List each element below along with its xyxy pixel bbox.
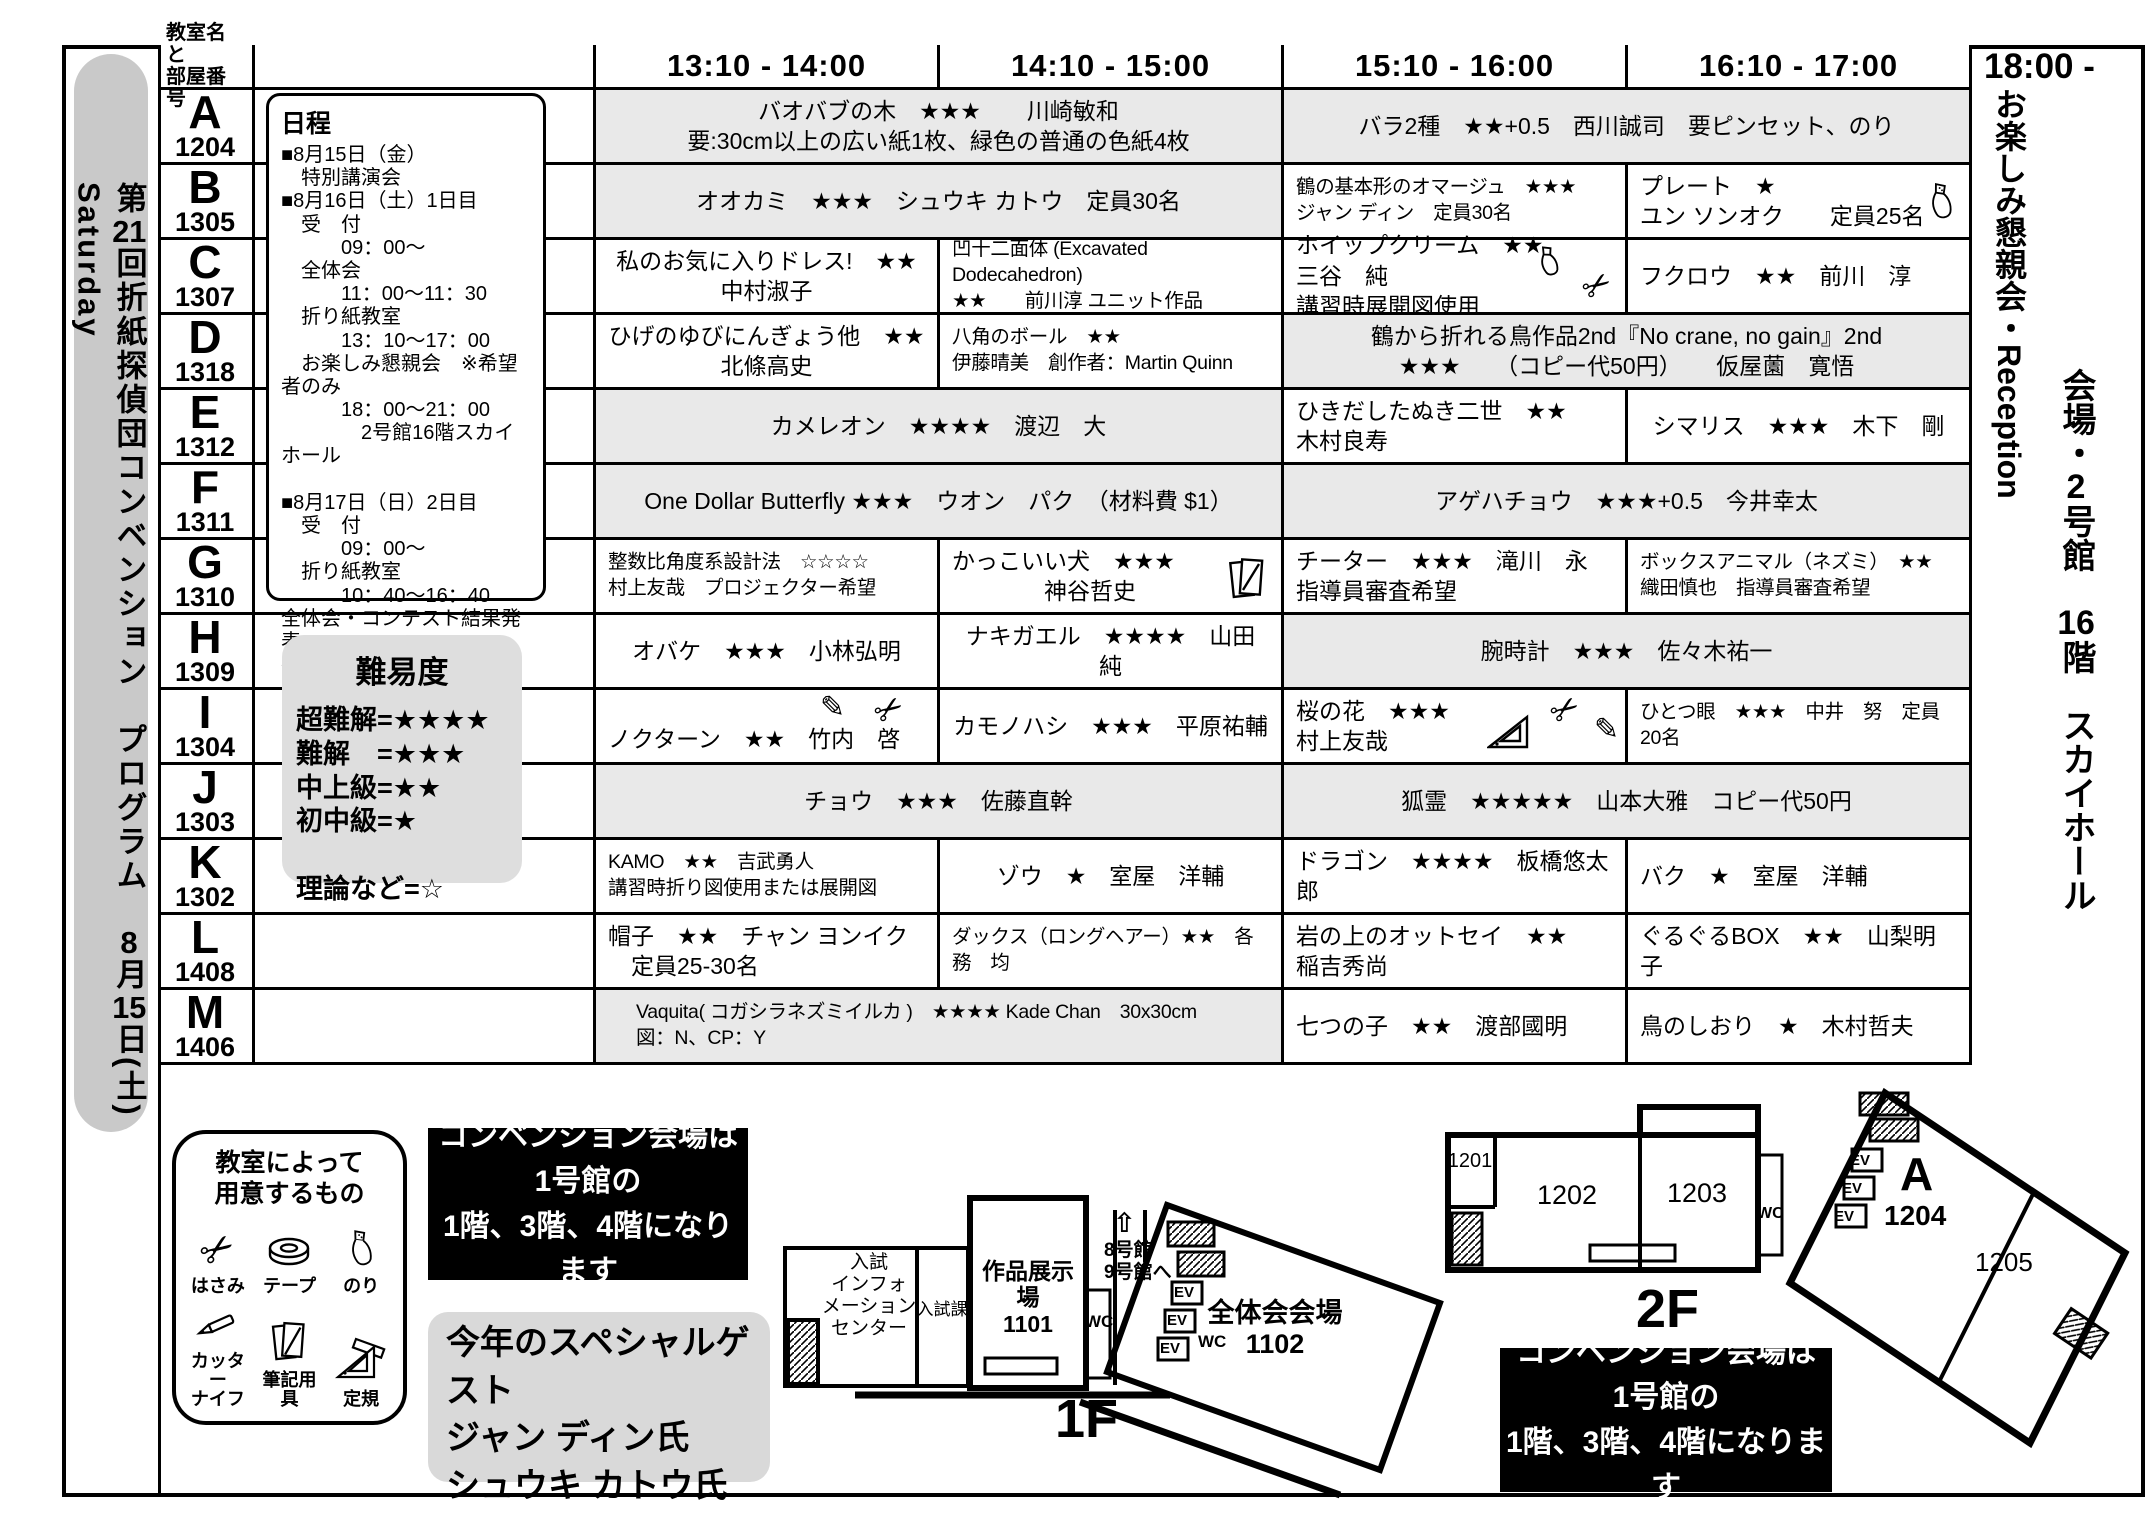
room-cell: H1309 [158,615,255,687]
session-cell: かっこいい犬 ★★★ 神谷哲史 [940,540,1284,612]
time-slot-header: 13:10 - 14:00 [596,45,940,87]
room-letter: F [191,466,219,510]
scissors-icon: ✂ [191,1221,245,1278]
session-cell: バク ★ 室屋 洋輔 [1628,840,1972,912]
session-text: バク ★ 室屋 洋輔 [1640,861,1957,891]
session-text: 帽子 ★★ チャン ヨンイク 定員25-30名 [608,921,925,982]
room-cell: M1406 [158,990,255,1062]
reception-vertical-label: お楽しみ懇親会・Reception [1986,88,2032,558]
session-cell: ホイップクリーム ★★ 三谷 純 講習時展開図使用 ✂ [1284,240,1628,312]
room-letter: J [192,766,218,810]
session-cell: ナキガエル ★★★★ 山田 純 [940,615,1284,687]
session-cell: 帽子 ★★ チャン ヨンイク 定員25-30名 [596,915,940,987]
room-number: 1408 [175,959,235,986]
page-title: 第21回折紙探偵団コンベンション プログラム 8月15日(土) Saturday [71,54,152,1132]
set-square-icon [1487,714,1529,755]
supply-item: テープ [254,1227,326,1296]
title-part: Saturday [72,182,107,339]
gap-cell [255,915,596,987]
title-part: 月 [112,958,147,992]
difficulty-title: 難易度 [296,647,508,692]
table-row: M1406 Vaquita( コガシラネズミイルカ ) ★★★★ Kade Ch… [158,990,1972,1065]
session-text: シマリス ★★★ 木下 剛 [1640,411,1957,441]
room-label-exhibit-hall: 作品展示場 1101 [972,1258,1084,1337]
room-cell: K1302 [158,840,255,912]
room-number: 1318 [175,359,235,386]
room-label-admissions-info: 入試 インフォ メーション センター [818,1252,920,1339]
room-number: 1302 [175,884,235,911]
supply-item: 定規 [325,1309,397,1409]
session-cell: 八角のボール ★★ 伊藤晴美 創作者：Martin Quinn [940,315,1284,387]
session-cell: 整数比角度系設計法 ☆☆☆☆ 村上友哉 プロジェクター希望 [596,540,940,612]
venue-vertical-label: 会場・2号館 16階 スカイホール [2052,368,2101,958]
session-cell: ひきだしたぬき二世 ★★ 木村良寿 [1284,390,1628,462]
table-left-border [158,45,161,1497]
session-text: チーター ★★★ 滝川 永 指導員審査希望 [1296,546,1613,607]
room-cell: C1307 [158,240,255,312]
ruler-icon [334,1337,388,1386]
room-letter: A [188,91,221,135]
title-part: 第 [112,182,147,216]
time-slot-header: 16:10 - 17:00 [1628,45,1972,87]
session-cell: 鳥のしおり ★ 木村哲夫 [1628,990,1972,1062]
supply-item: 筆記用具 [254,1309,326,1409]
supplies-box: 教室によって 用意するもの ✂はさみ テープ のり カッター ナイフ 筆記用具 … [172,1130,407,1425]
venue-part: 階 スカイホール [2057,640,2095,912]
room-label-1202: 1202 [1535,1180,1599,1211]
room-cell: J1303 [158,765,255,837]
session-text: カモノハシ ★★★ 平原祐輔 [952,711,1269,741]
room-letter: E [190,391,221,435]
notepad-pencil-icon [1229,554,1265,605]
session-text: 岩の上のオットセイ ★★ 稲吉秀尚 [1296,921,1613,982]
venue-notice-1: コンベンション会場は 1号館の 1階、3階、4階になります [428,1128,748,1280]
session-text: 狐霊 ★★★★★ 山本大雅 コピー代50円 [1296,786,1957,816]
up-arrow-icon: ⇧ [1113,1208,1136,1239]
session-cell: ダックス（ロングヘアー）★★ 各務 均 [940,915,1284,987]
gap-cell [255,990,596,1062]
session-text: Vaquita( コガシラネズミイルカ ) ★★★★ Kade Chan 30x… [608,1000,1269,1051]
room-cell: L1408 [158,915,255,987]
session-cell: 鶴の基本形のオマージュ ★★★ ジャン ディン 定員30名 [1284,165,1628,237]
side-title-bar: 第21回折紙探偵団コンベンション プログラム 8月15日(土) Saturday [74,54,148,1132]
supply-label: 定規 [343,1390,379,1409]
tape-icon [266,1236,312,1273]
room-label-a: A [1900,1148,1933,1201]
difficulty-box: 難易度 超難解=★★★★ 難解 =★★★ 中上級=★★ 初中級=★ 理論など=☆ [282,635,522,883]
session-text: 私のお気に入りドレス! ★★ 中村淑子 [608,246,925,307]
supplies-title: 教室によって 用意するもの [182,1148,397,1211]
session-text: 腕時計 ★★★ 佐々木祐一 [1296,636,1957,666]
session-text: ドラゴン ★★★★ 板橋悠太郎 [1296,846,1613,907]
title-part: 8 [112,927,147,958]
time-slot-header: 14:10 - 15:00 [940,45,1284,87]
session-cell: ゾウ ★ 室屋 洋輔 [940,840,1284,912]
room-label-1204: 1204 [1884,1200,1946,1232]
session-cell: 腕時計 ★★★ 佐々木祐一 [1284,615,1972,687]
supply-item: カッター ナイフ [182,1309,254,1409]
special-guest-box: 今年のスペシャルゲスト ジャン ディン氏 シュウキ カトウ氏 [428,1312,770,1482]
program-page: 第21回折紙探偵団コンベンション プログラム 8月15日(土) Saturday… [0,0,2150,1518]
session-cell: 狐霊 ★★★★★ 山本大雅 コピー代50円 [1284,765,1972,837]
session-text: ひとつ眼 ★★★ 中井 努 定員20名 [1640,700,1957,751]
session-cell: プレート ★ ユン ソンオク 定員25名 [1628,165,1972,237]
room-number: 1406 [175,1034,235,1061]
session-text: カメレオン ★★★★ 渡辺 大 [608,411,1269,441]
room-letter: G [187,541,223,585]
session-cell: KAMO ★★ 吉武勇人 講習時折り図使用または展開図 [596,840,940,912]
session-text: 鶴から折れる鳥作品2nd『No crane, no gain』2nd ★★★ （… [1296,321,1957,382]
session-text: フクロウ ★★ 前川 淳 [1640,261,1957,291]
session-text: チョウ ★★★ 佐藤直幹 [608,786,1269,816]
stationery-icon [269,1318,309,1367]
session-text: ダックス（ロングヘアー）★★ 各務 均 [952,925,1269,976]
session-cell: フクロウ ★★ 前川 淳 [1628,240,1972,312]
floor-label-1f: 1F [1055,1388,1118,1450]
room-number: 1303 [175,809,235,836]
room-cell: G1310 [158,540,255,612]
wc-label: WC [1085,1312,1113,1332]
supply-label: テープ [263,1277,316,1296]
title-part: 日(土) [112,1023,147,1152]
session-text: オオカミ ★★★ シュウキ カトウ 定員30名 [608,186,1269,216]
time-slot-header: 15:10 - 16:00 [1284,45,1628,87]
room-number: 1311 [176,509,235,536]
table-row: L1408 帽子 ★★ チャン ヨンイク 定員25-30名 ダックス（ロングヘア… [158,915,1972,990]
venue-part: 号館 [2057,504,2095,606]
venue-part: 会場・ [2057,368,2095,470]
room-col-header: 教室名と 部屋番号 [158,45,255,87]
room-label-plenary-hall: 全体会会場 1102 [1180,1298,1370,1360]
session-text: ナキガエル ★★★★ 山田 純 [952,621,1269,682]
session-cell: 鶴から折れる鳥作品2nd『No crane, no gain』2nd ★★★ （… [1284,315,1972,387]
session-cell: ノクターン ★★ 竹内 啓 ✎ ✂ [596,690,940,762]
venue-notice-2: コンベンション会場は 1号館の 1階、3階、4階になります [1500,1348,1832,1492]
supply-item: のり [325,1227,397,1296]
session-cell: 凹十二面体 (Excavated Dodecahedron) ★★ 前川淳 ユニ… [940,240,1284,312]
schedule-box: 日程 ■8月15日（金） 特別講演会 ■8月16日（土）1日目 受 付 09：0… [266,93,546,601]
supplies-grid: ✂はさみ テープ のり カッター ナイフ 筆記用具 定規 [182,1227,397,1410]
venue-part: 16 [2057,606,2095,640]
ev-label: EV [1834,1208,1854,1225]
pencil-icon: ✎ [1594,712,1619,747]
pencil-icon: ✎ [820,690,845,725]
room-letter: C [188,241,221,285]
title-part: 15 [112,992,147,1023]
room-letter: D [188,316,221,360]
session-text: ノクターン ★★ 竹内 啓 [608,724,925,754]
room-number: 1304 [175,734,235,761]
room-cell: E1312 [158,390,255,462]
evening-slot-header: 18:00 - [1984,47,2095,87]
difficulty-body: 超難解=★★★★ 難解 =★★★ 中上級=★★ 初中級=★ 理論など=☆ [296,704,508,907]
session-cell: ひとつ眼 ★★★ 中井 努 定員20名 [1628,690,1972,762]
room-letter: L [191,916,219,960]
supply-item: ✂はさみ [182,1227,254,1296]
session-cell: オオカミ ★★★ シュウキ カトウ 定員30名 [596,165,1284,237]
session-cell: ひげのゆびにんぎょう他 ★★ 北條高史 [596,315,940,387]
room-number: 1312 [175,434,235,461]
session-text: ぐるぐるBOX ★★ 山梨明子 [1640,921,1957,982]
venue-part: 2 [2057,470,2095,504]
room-number: 1204 [175,134,235,161]
session-text: One Dollar Butterfly ★★★ ウオン パク （材料費 $1） [608,486,1269,516]
supply-label: 筆記用具 [254,1371,326,1409]
title-part: 21 [112,216,147,247]
to-building-label: 8号館 9号館へ [1104,1240,1172,1284]
room-number: 1310 [175,584,235,611]
session-text: オバケ ★★★ 小林弘明 [608,636,925,666]
session-cell: シマリス ★★★ 木下 剛 [1628,390,1972,462]
room-cell: B1305 [158,165,255,237]
session-text: KAMO ★★ 吉武勇人 講習時折り図使用または展開図 [608,850,925,901]
room-cell: D1318 [158,315,255,387]
room-number: 1309 [175,659,235,686]
session-cell: 桜の花 ★★★ 村上友哉 ✂ ✎ [1284,690,1628,762]
supply-label: カッター ナイフ [182,1352,254,1409]
session-text: ひげのゆびにんぎょう他 ★★ 北條高史 [608,321,925,382]
room-number: 1307 [175,284,235,311]
session-cell: ドラゴン ★★★★ 板橋悠太郎 [1284,840,1628,912]
session-cell: ぐるぐるBOX ★★ 山梨明子 [1628,915,1972,987]
reception-text-en: Reception [1991,344,2027,499]
session-text: ひきだしたぬき二世 ★★ 木村良寿 [1296,396,1613,457]
room-letter: I [199,691,212,735]
schedule-title: 日程 [281,104,531,140]
session-text: バオバブの木 ★★★ 川崎敏和 要:30cm以上の広い紙1枚、緑色の普通の色紙4… [608,96,1269,157]
session-text: 鶴の基本形のオマージュ ★★★ ジャン ディン 定員30名 [1296,175,1613,226]
session-text: かっこいい犬 ★★★ 神谷哲史 [952,546,1269,607]
room-number: 1305 [175,209,235,236]
ev-label: EV [1842,1180,1862,1197]
session-cell: チーター ★★★ 滝川 永 指導員審査希望 [1284,540,1628,612]
supply-label: はさみ [191,1277,245,1296]
cutter-knife-icon [192,1309,244,1348]
wc-label: WC [1757,1205,1784,1223]
room-letter: M [186,991,224,1035]
session-cell: バラ2種 ★★+0.5 西川誠司 要ピンセット、のり [1284,90,1972,162]
session-text: 八角のボール ★★ 伊藤晴美 創作者：Martin Quinn [952,325,1269,376]
supply-label: のり [343,1277,379,1296]
room-label-1205: 1205 [1975,1248,2033,1278]
session-cell: カメレオン ★★★★ 渡辺 大 [596,390,1284,462]
session-cell: バオバブの木 ★★★ 川崎敏和 要:30cm以上の広い紙1枚、緑色の普通の色紙4… [596,90,1284,162]
session-text: 凹十二面体 (Excavated Dodecahedron) ★★ 前川淳 ユニ… [952,237,1269,314]
session-text: バラ2種 ★★+0.5 西川誠司 要ピンセット、のり [1296,111,1957,141]
room-cell: I1304 [158,690,255,762]
session-cell: アゲハチョウ ★★★+0.5 今井幸太 [1284,465,1972,537]
room-letter: B [188,166,221,210]
ev-label: EV [1850,1152,1870,1169]
room-cell: F1311 [158,465,255,537]
session-text: 整数比角度系設計法 ☆☆☆☆ 村上友哉 プロジェクター希望 [608,550,925,601]
session-cell: 岩の上のオットセイ ★★ 稲吉秀尚 [1284,915,1628,987]
session-text: ゾウ ★ 室屋 洋輔 [952,861,1269,891]
session-text: ホイップクリーム ★★ 三谷 純 講習時展開図使用 [1296,230,1613,321]
reception-text: お楽しみ懇親会・ [1991,88,2027,344]
title-part: 回折紙探偵団コンベンション プログラム [112,247,147,927]
session-text: 七つの子 ★★ 渡部國明 [1296,1011,1613,1041]
header-row: 教室名と 部屋番号 13:10 - 14:00 14:10 - 15:00 15… [158,45,1972,90]
room-letter: H [188,616,221,660]
session-text: 鳥のしおり ★ 木村哲夫 [1640,1011,1957,1041]
session-cell: チョウ ★★★ 佐藤直幹 [596,765,1284,837]
session-text: アゲハチョウ ★★★+0.5 今井幸太 [1296,486,1957,516]
gap-cell [255,45,596,87]
room-label-1201: 1201 [1444,1150,1496,1173]
session-text: ボックスアニマル（ネズミ） ★★ 織田慎也 指導員審査希望 [1640,550,1957,601]
room-cell: A1204 [158,90,255,162]
ev-label: EV [1160,1340,1180,1357]
room-label-1203: 1203 [1665,1178,1729,1209]
session-cell: One Dollar Butterfly ★★★ ウオン パク （材料費 $1） [596,465,1284,537]
session-text: プレート ★ ユン ソンオク 定員25名 [1640,171,1957,232]
session-cell: オバケ ★★★ 小林弘明 [596,615,940,687]
session-cell: Vaquita( コガシラネズミイルカ ) ★★★★ Kade Chan 30x… [596,990,1284,1062]
session-cell: 七つの子 ★★ 渡部國明 [1284,990,1628,1062]
room-label-admissions: 入試課 [914,1300,970,1320]
glue-icon [344,1225,378,1274]
session-cell: ボックスアニマル（ネズミ） ★★ 織田慎也 指導員審査希望 [1628,540,1972,612]
session-cell: カモノハシ ★★★ 平原祐輔 [940,690,1284,762]
room-letter: K [188,841,221,885]
session-cell: 私のお気に入りドレス! ★★ 中村淑子 [596,240,940,312]
